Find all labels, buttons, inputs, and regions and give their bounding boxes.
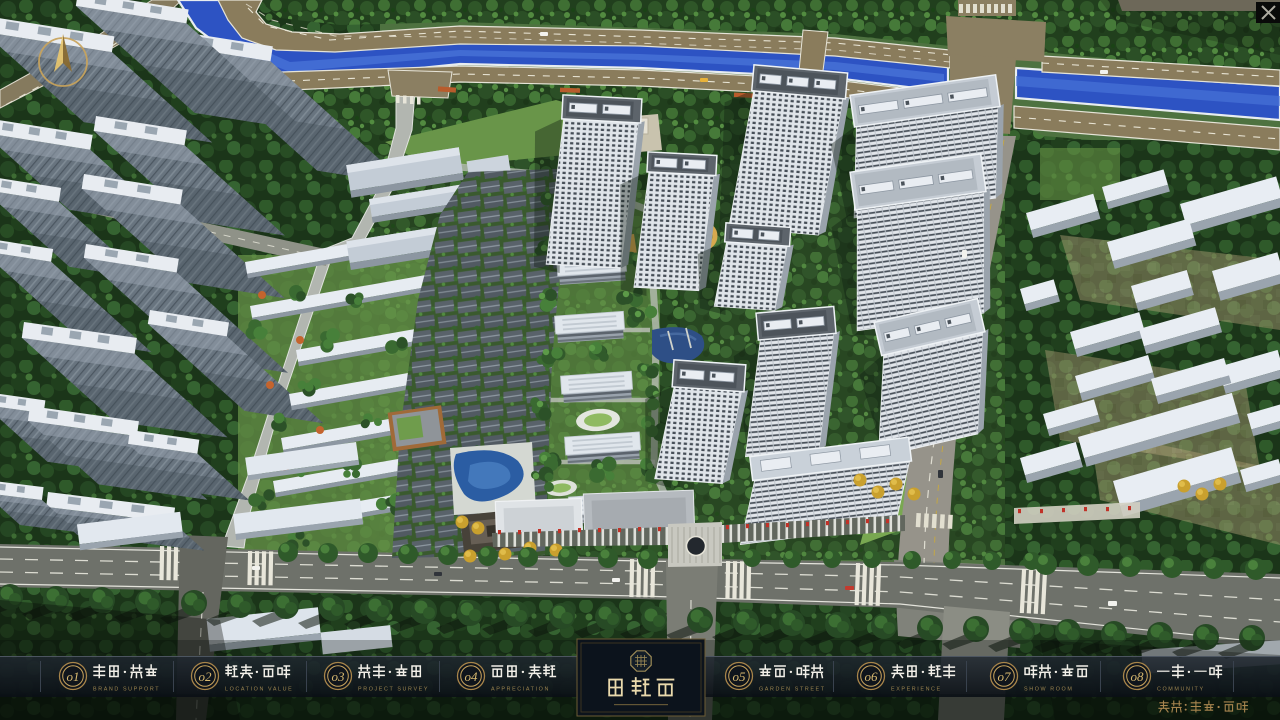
svg-text:COMMUNITY: COMMUNITY (1157, 687, 1205, 693)
svg-text:APPRECIATION: APPRECIATION (491, 687, 550, 693)
svg-text:EXPERIENCE: EXPERIENCE (891, 687, 942, 693)
svg-text:SHOW ROOM: SHOW ROOM (1024, 687, 1073, 693)
svg-text:LOCATION VALUE: LOCATION VALUE (225, 687, 293, 693)
svg-text:BRAND SUPPORT: BRAND SUPPORT (93, 687, 160, 693)
svg-text:o5: o5 (733, 669, 747, 684)
svg-text:GARDEN STREET: GARDEN STREET (759, 687, 826, 693)
svg-text:PROJECT SURVEY: PROJECT SURVEY (358, 687, 429, 693)
svg-text:o8: o8 (1131, 669, 1145, 684)
svg-text:o2: o2 (199, 669, 213, 684)
svg-text:o6: o6 (865, 669, 879, 684)
svg-text:o7: o7 (998, 669, 1012, 684)
svg-text:o1: o1 (67, 669, 80, 684)
svg-text:o4: o4 (465, 669, 479, 684)
svg-text:o3: o3 (332, 669, 346, 684)
